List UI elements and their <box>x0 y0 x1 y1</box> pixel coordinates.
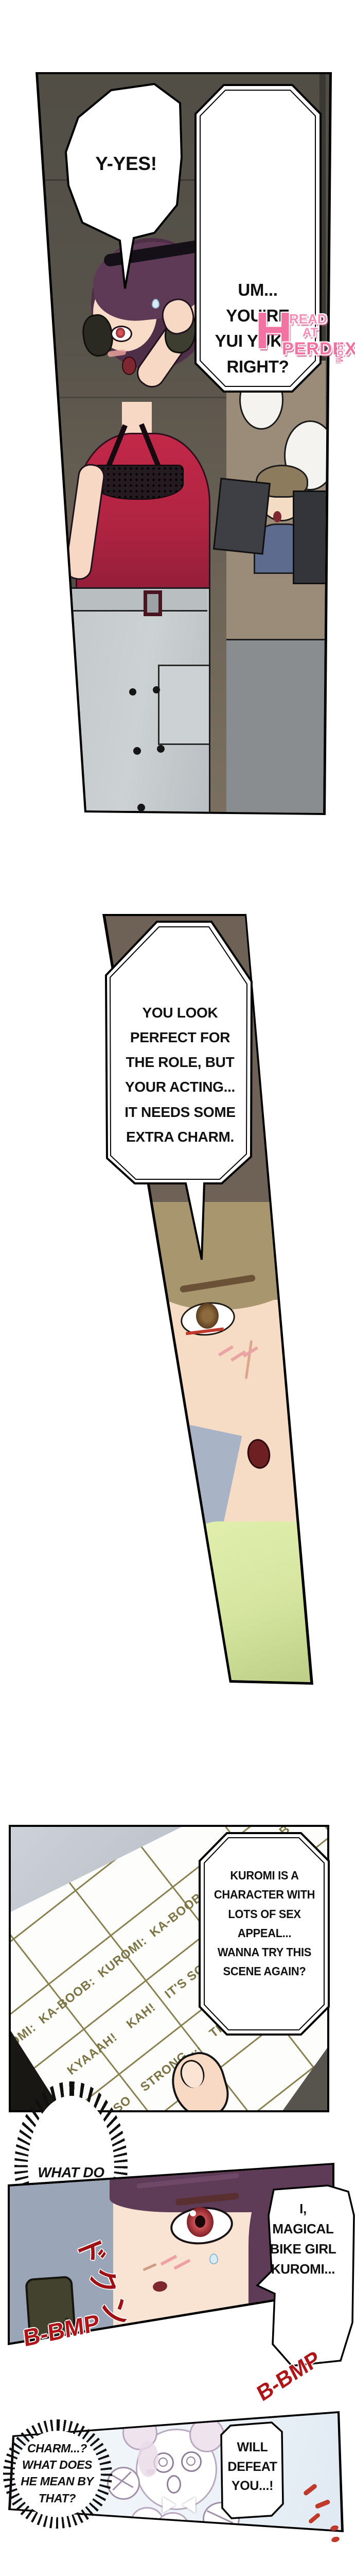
watermark-tld: .COM <box>336 343 345 362</box>
sweat-drop <box>209 2253 218 2264</box>
manga-page: { "watermark": { "monogram": "H", "read"… <box>0 0 355 2576</box>
belt-buckle <box>144 590 162 616</box>
chibi-eye-inner <box>186 2456 196 2466</box>
skirt-pocket <box>158 665 209 745</box>
monitor <box>213 478 271 554</box>
eye-pupil <box>195 2215 205 2228</box>
desk-partition <box>226 639 326 817</box>
actress-iris <box>116 328 125 338</box>
speech-bubble-yyes <box>62 80 188 296</box>
chibi-bow <box>163 2497 176 2513</box>
chibi-bow <box>182 2497 196 2513</box>
skirt-button <box>153 686 160 693</box>
blush-line <box>174 2259 191 2269</box>
skirt-button <box>129 688 136 696</box>
chibi-mouth <box>167 2475 181 2494</box>
speech-bubble-defeat-text: WILL DEFEAT YOU...! <box>223 2438 282 2496</box>
skirt-button <box>157 745 165 753</box>
sweat-drop <box>152 299 159 309</box>
speech-bubble-yyes-text: Y-YES! <box>77 149 175 178</box>
speech-bubble-direction-text: YOU LOOK PERFECT FOR THE ROLE, BUT YOUR … <box>116 1001 244 1149</box>
watermark-read: READ <box>289 311 327 327</box>
actress-mouth <box>122 357 136 375</box>
red-scribble <box>331 2536 340 2543</box>
speech-bubble-kuromi-text: KUROMI IS A CHARACTER WITH LOTS OF SEX A… <box>207 1866 322 1981</box>
chibi-shade <box>138 2441 158 2477</box>
chibi-ruffle <box>131 2507 164 2536</box>
monitor <box>293 490 332 584</box>
belt <box>69 589 207 612</box>
director-mouth <box>273 511 281 522</box>
director-shirt-green <box>174 1521 324 1691</box>
chibi-bun <box>189 2417 224 2452</box>
speech-bubble-magical-text: I, MAGICAL BIKE GIRL KUROMI... <box>260 2199 346 2279</box>
skirt-button <box>133 747 141 755</box>
watermark-at: AT <box>303 326 318 340</box>
eye-glint <box>190 2210 196 2216</box>
site-watermark: H READ AT PERDEX .COM <box>255 308 355 370</box>
lace-trim <box>93 465 184 500</box>
nose-line <box>143 2263 157 2272</box>
chibi-ruffle <box>156 2512 189 2541</box>
blush-line <box>161 2255 177 2265</box>
thought-charm-text: CHARM...? WHAT DOES HE MEAN BY THAT? <box>8 2440 106 2506</box>
mouth-open <box>152 2280 168 2293</box>
chibi-eye-inner <box>158 2458 168 2467</box>
director-eye-iris <box>196 1303 219 1329</box>
skirt-button <box>137 804 145 811</box>
